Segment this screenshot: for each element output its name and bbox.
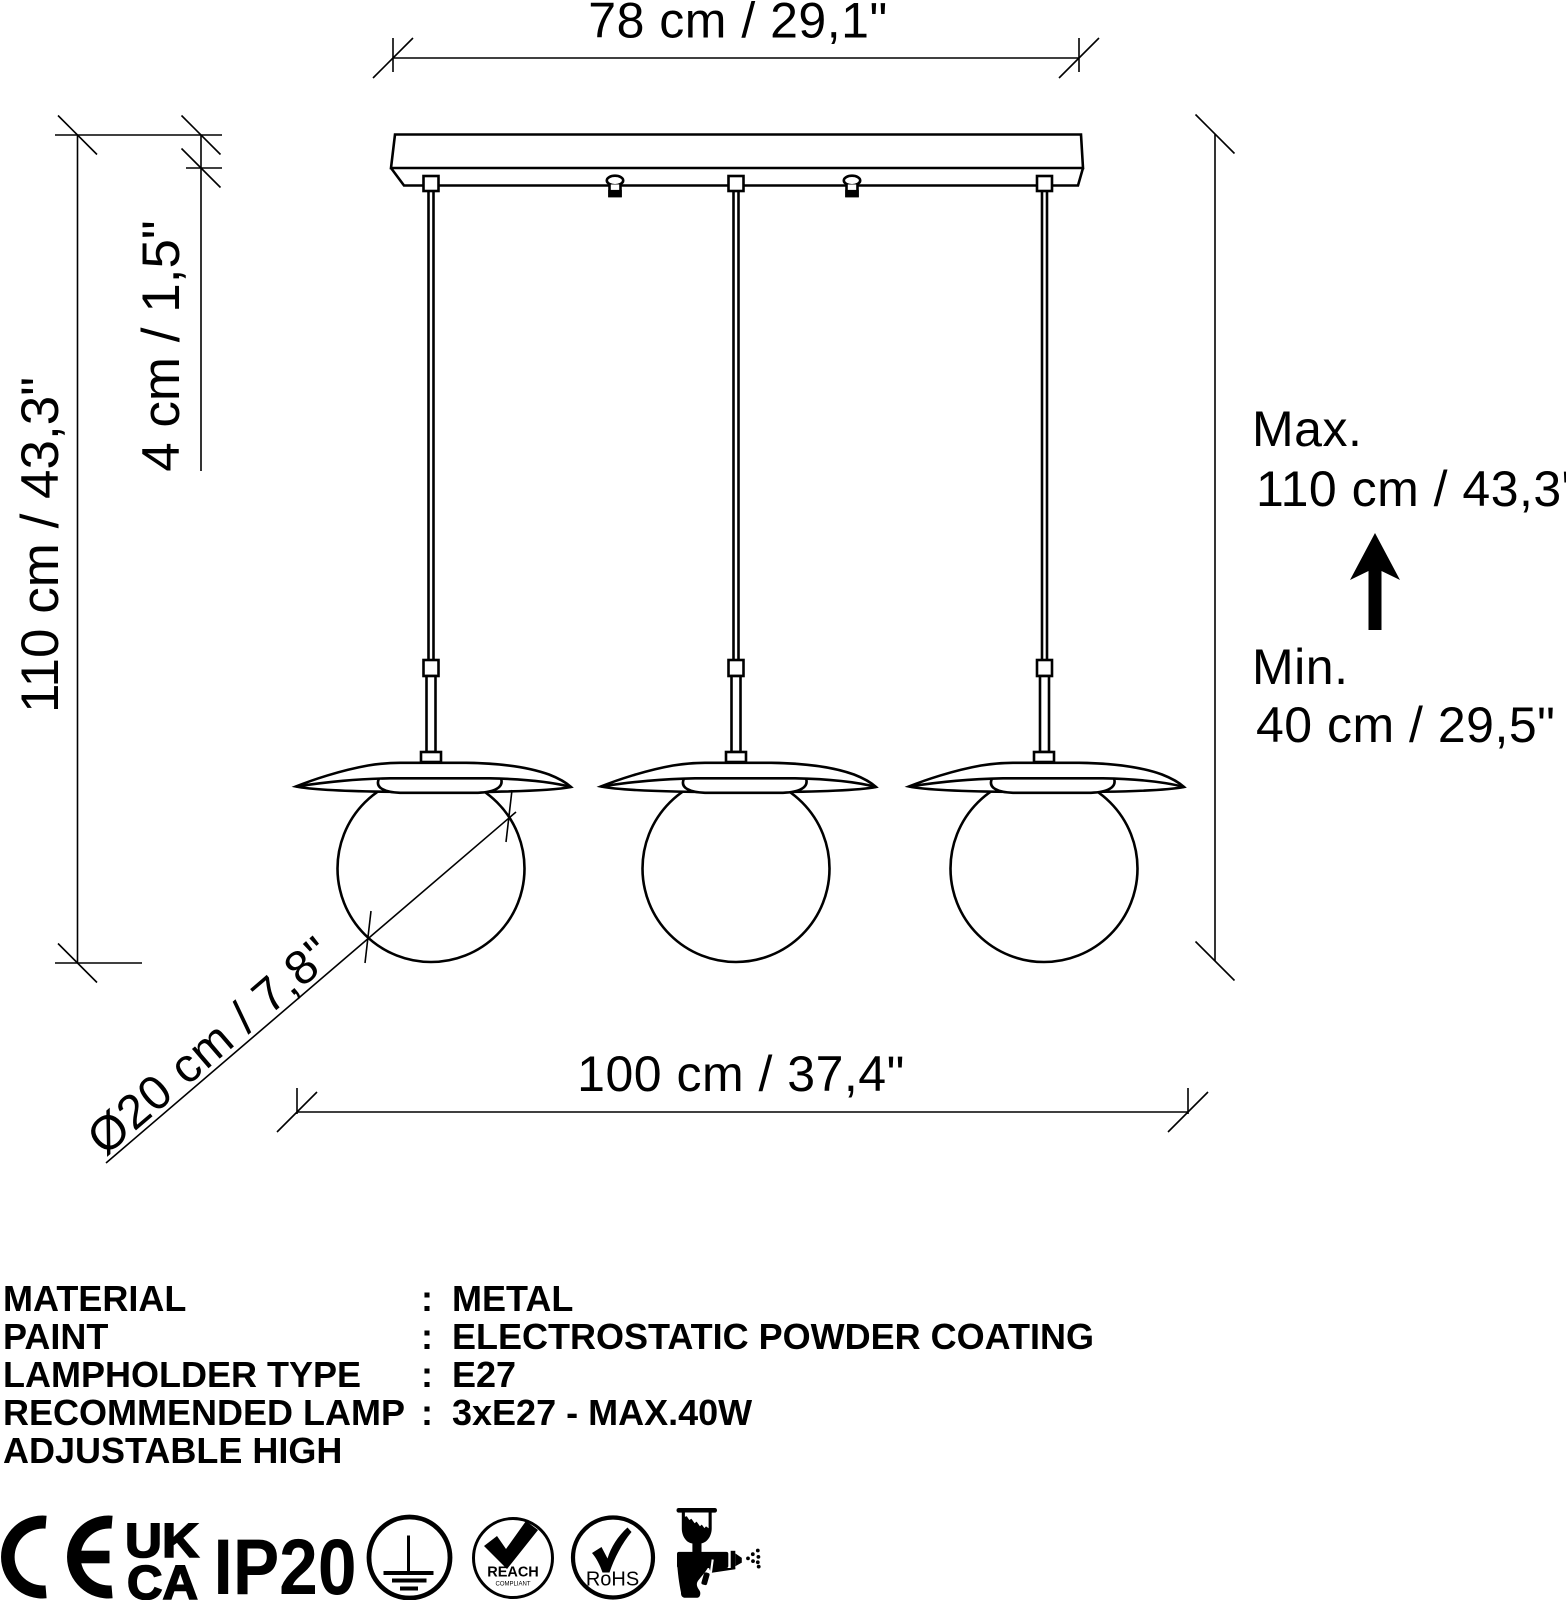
svg-text:100 cm / 37,4": 100 cm / 37,4" xyxy=(577,1046,905,1102)
svg-text:ADJUSTABLE HIGH: ADJUSTABLE HIGH xyxy=(3,1430,342,1471)
svg-text:PAINT: PAINT xyxy=(3,1316,108,1357)
svg-text:RoHS: RoHS xyxy=(586,1569,639,1591)
svg-text:40 cm / 29,5": 40 cm / 29,5" xyxy=(1256,697,1555,753)
svg-text:4 cm / 1,5": 4 cm / 1,5" xyxy=(132,220,191,472)
svg-text:110 cm / 43,3": 110 cm / 43,3" xyxy=(11,377,70,713)
svg-text:RECOMMENDED LAMP: RECOMMENDED LAMP xyxy=(3,1392,405,1433)
svg-text:78 cm / 29,1": 78 cm / 29,1" xyxy=(588,0,887,49)
svg-text:COMPLIANT: COMPLIANT xyxy=(495,1582,530,1588)
svg-text:Max.: Max. xyxy=(1252,401,1362,457)
svg-text::: : xyxy=(421,1392,433,1433)
svg-text:MATERIAL: MATERIAL xyxy=(3,1278,186,1319)
svg-text:REACH: REACH xyxy=(487,1565,539,1581)
svg-text::: : xyxy=(421,1354,433,1395)
svg-text:LAMPHOLDER TYPE: LAMPHOLDER TYPE xyxy=(3,1354,361,1395)
svg-text:3xE27 - MAX.40W: 3xE27 - MAX.40W xyxy=(452,1392,752,1433)
svg-text::: : xyxy=(421,1316,433,1357)
svg-text:METAL: METAL xyxy=(452,1278,573,1319)
svg-text:IP20: IP20 xyxy=(214,1522,357,1600)
svg-text::: : xyxy=(421,1278,433,1319)
svg-text:Min.: Min. xyxy=(1252,639,1348,695)
svg-text:E27: E27 xyxy=(452,1354,516,1395)
svg-text:ELECTROSTATIC POWDER COATING: ELECTROSTATIC POWDER COATING xyxy=(452,1316,1094,1357)
svg-text:CA: CA xyxy=(127,1557,198,1600)
svg-text:110 cm / 43,3": 110 cm / 43,3" xyxy=(1256,461,1566,517)
